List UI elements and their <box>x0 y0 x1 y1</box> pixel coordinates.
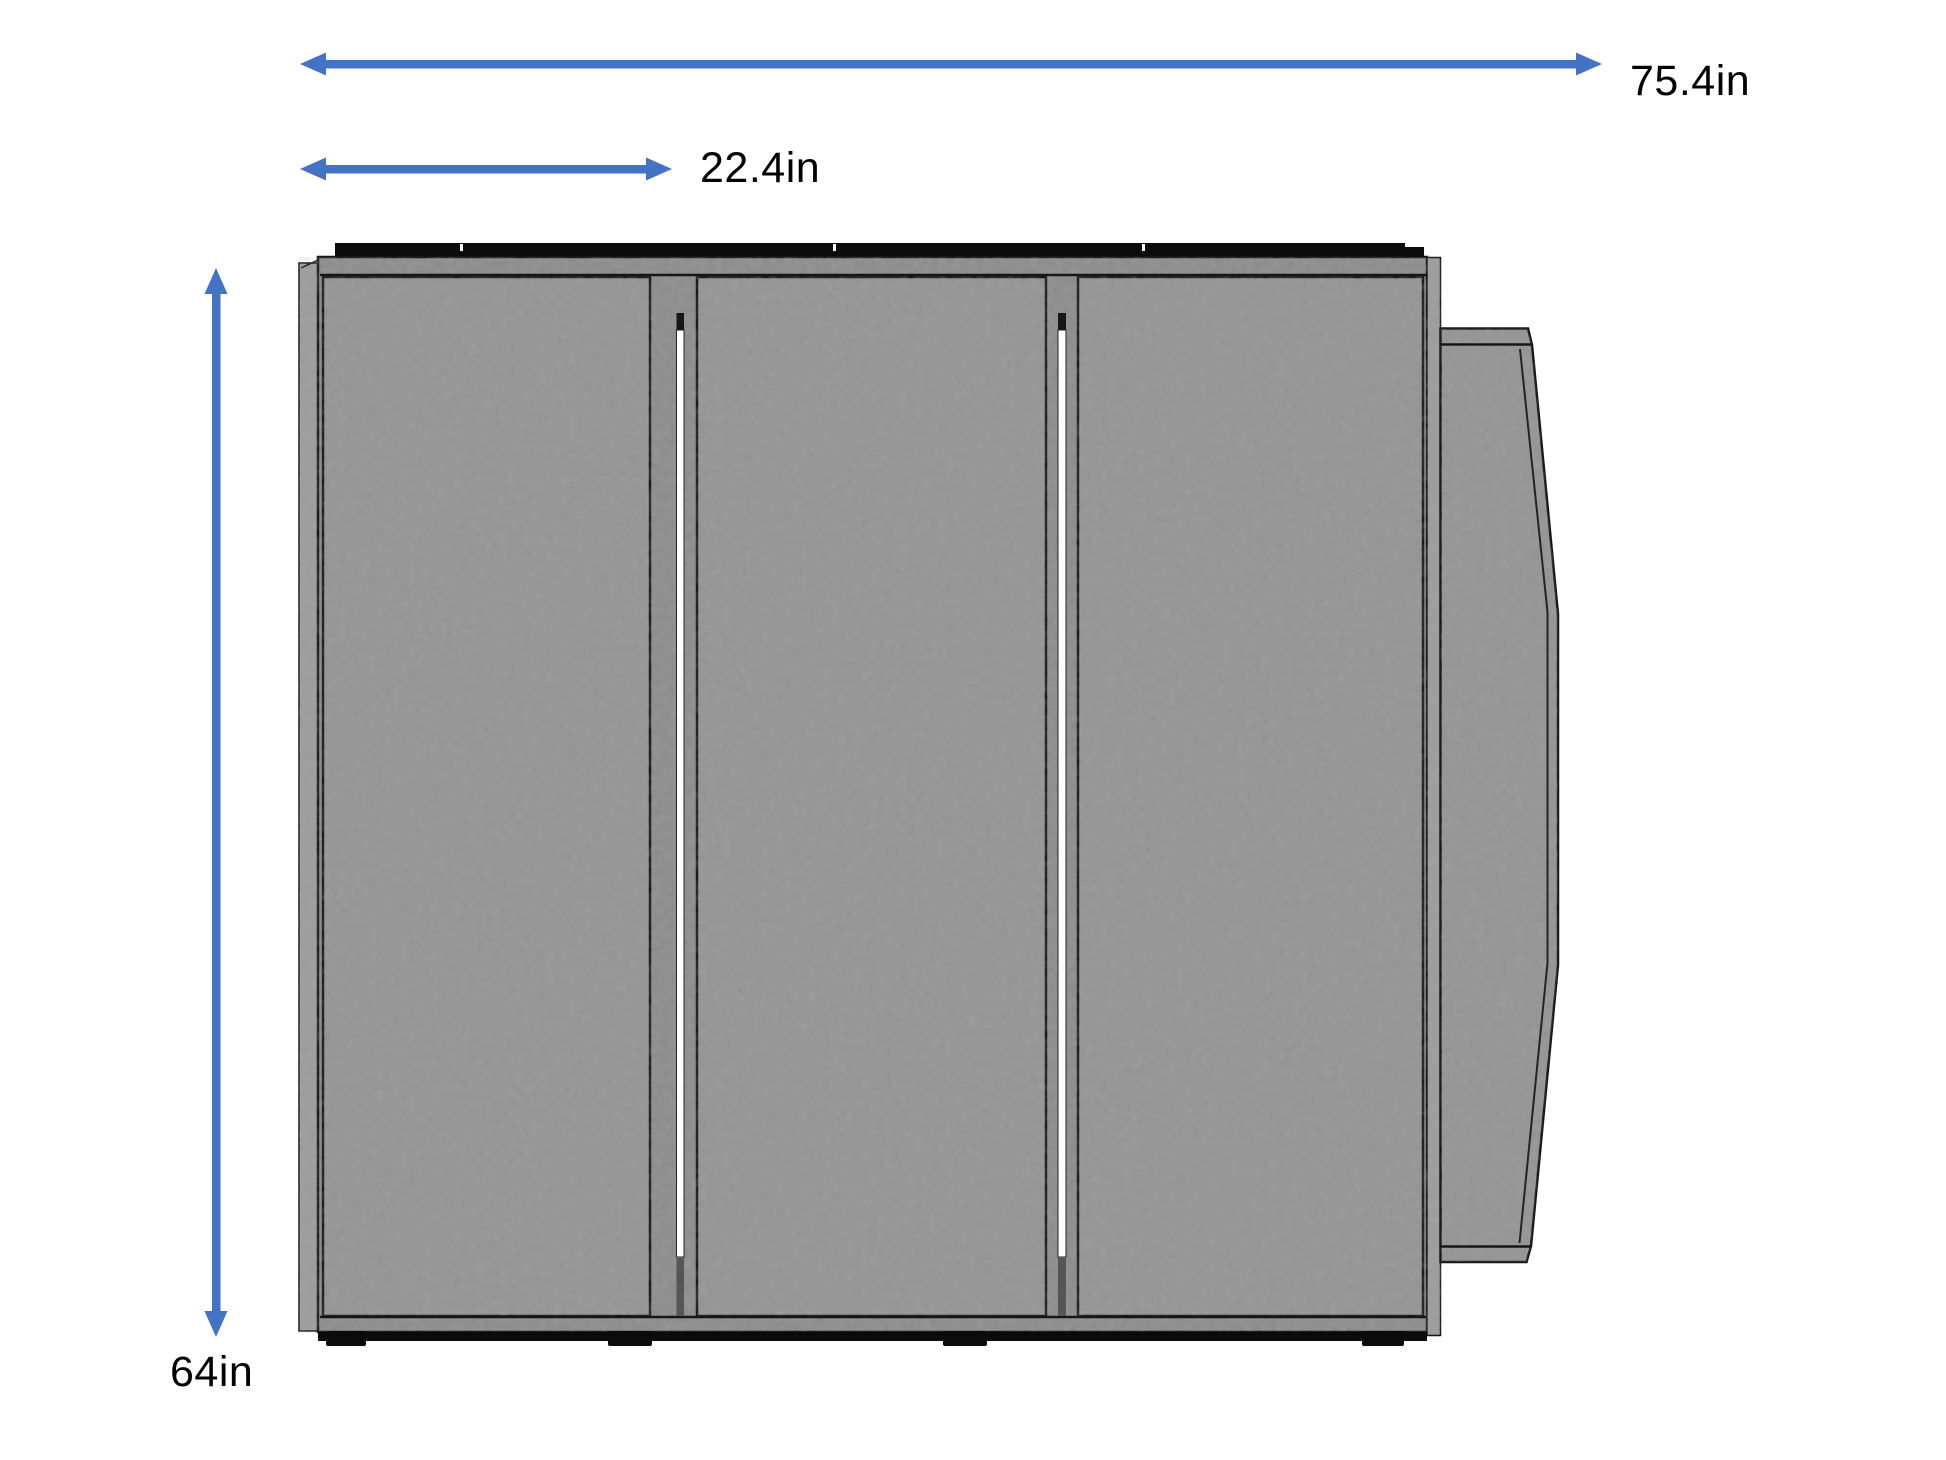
gap-notch-top <box>677 313 685 330</box>
side-leaf-texture <box>1440 328 1560 1264</box>
cabinet-body <box>299 243 1441 1346</box>
arrow-head-left <box>300 53 326 76</box>
body-texture <box>299 257 1441 1333</box>
arrow-head-top <box>205 268 228 294</box>
overall-width-label: 75.4in <box>1630 59 1750 104</box>
arrow-shaft <box>212 290 221 1315</box>
arrow-head-bottom <box>205 1311 228 1337</box>
section-width-arrow <box>300 158 672 181</box>
section-width-label: 22.4in <box>700 146 820 191</box>
bottom-trim <box>318 1331 1427 1346</box>
arrow-head-right <box>1576 53 1602 76</box>
height-label: 64in <box>170 1350 253 1395</box>
top-trim-notch <box>1142 244 1145 251</box>
side-leaf <box>1440 328 1560 1264</box>
cabinet-drawing <box>0 0 1946 1460</box>
foot <box>608 1331 652 1346</box>
top-trim <box>335 243 1424 257</box>
arrow-head-left <box>300 158 326 181</box>
gap-shadow-bottom <box>677 1257 685 1316</box>
foot <box>326 1331 366 1346</box>
foot <box>1362 1331 1404 1346</box>
top-trim-end <box>1405 247 1424 257</box>
arrow-head-right <box>646 158 672 181</box>
top-trim-notch <box>833 244 836 251</box>
arrow-shaft <box>322 165 650 174</box>
foot <box>943 1331 987 1346</box>
gap-shadow-bottom <box>1058 1257 1066 1316</box>
gap-notch-top <box>1058 313 1066 330</box>
top-trim-notch <box>460 244 463 251</box>
panel-gap-right <box>1058 330 1066 1257</box>
top-trim-bar <box>335 243 1405 256</box>
arrow-shaft <box>322 60 1580 69</box>
bottom-trim-bar <box>318 1332 1427 1342</box>
panel-gap-left <box>677 330 685 1257</box>
dimension-diagram: 75.4in 22.4in 64in <box>0 0 1946 1460</box>
overall-width-arrow <box>300 53 1602 76</box>
height-arrow <box>205 268 228 1337</box>
